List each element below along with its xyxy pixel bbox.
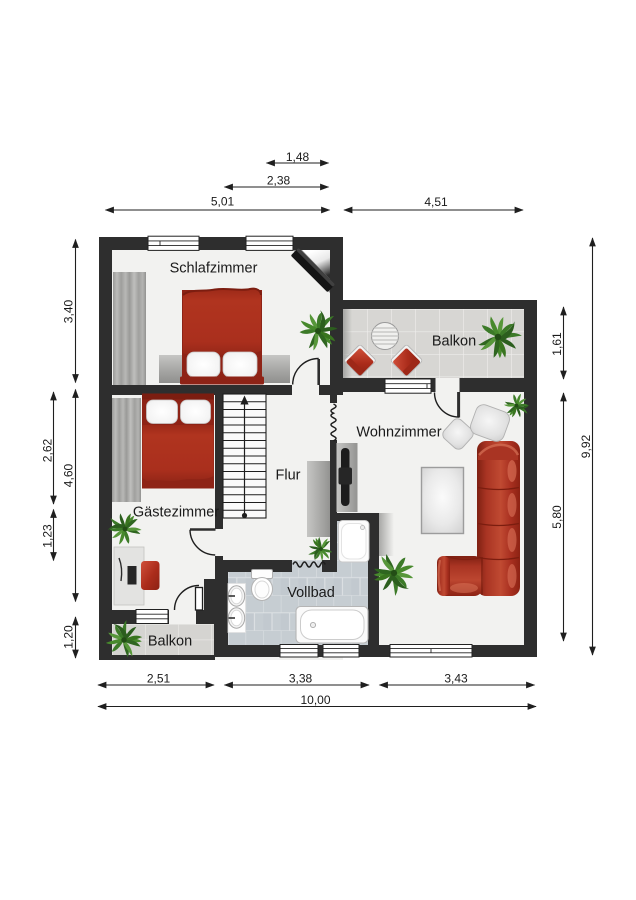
svg-text:Gästezimmer: Gästezimmer — [133, 505, 219, 521]
svg-text:Balkon: Balkon — [148, 634, 192, 650]
svg-text:Schlafzimmer: Schlafzimmer — [170, 261, 258, 277]
svg-text:4,51: 4,51 — [424, 195, 448, 209]
svg-text:1,23: 1,23 — [41, 524, 55, 548]
svg-text:5,01: 5,01 — [211, 195, 235, 209]
svg-text:4,60: 4,60 — [62, 463, 76, 487]
svg-text:9,92: 9,92 — [579, 434, 593, 458]
svg-text:1,20: 1,20 — [62, 625, 76, 649]
svg-text:1,48: 1,48 — [286, 150, 310, 164]
svg-text:Balkon: Balkon — [432, 334, 476, 350]
svg-text:Wohnzimmer: Wohnzimmer — [356, 425, 441, 441]
svg-text:Flur: Flur — [276, 468, 301, 484]
svg-text:1,61: 1,61 — [550, 332, 564, 356]
svg-text:5,80: 5,80 — [550, 505, 564, 529]
svg-text:2,38: 2,38 — [267, 174, 291, 188]
svg-text:3,43: 3,43 — [444, 672, 468, 686]
svg-text:2,51: 2,51 — [147, 672, 171, 686]
svg-text:10,00: 10,00 — [300, 693, 330, 707]
svg-text:Vollbad: Vollbad — [287, 585, 335, 601]
svg-text:3,38: 3,38 — [289, 672, 313, 686]
svg-text:2,62: 2,62 — [41, 438, 55, 462]
svg-text:3,40: 3,40 — [62, 299, 76, 323]
